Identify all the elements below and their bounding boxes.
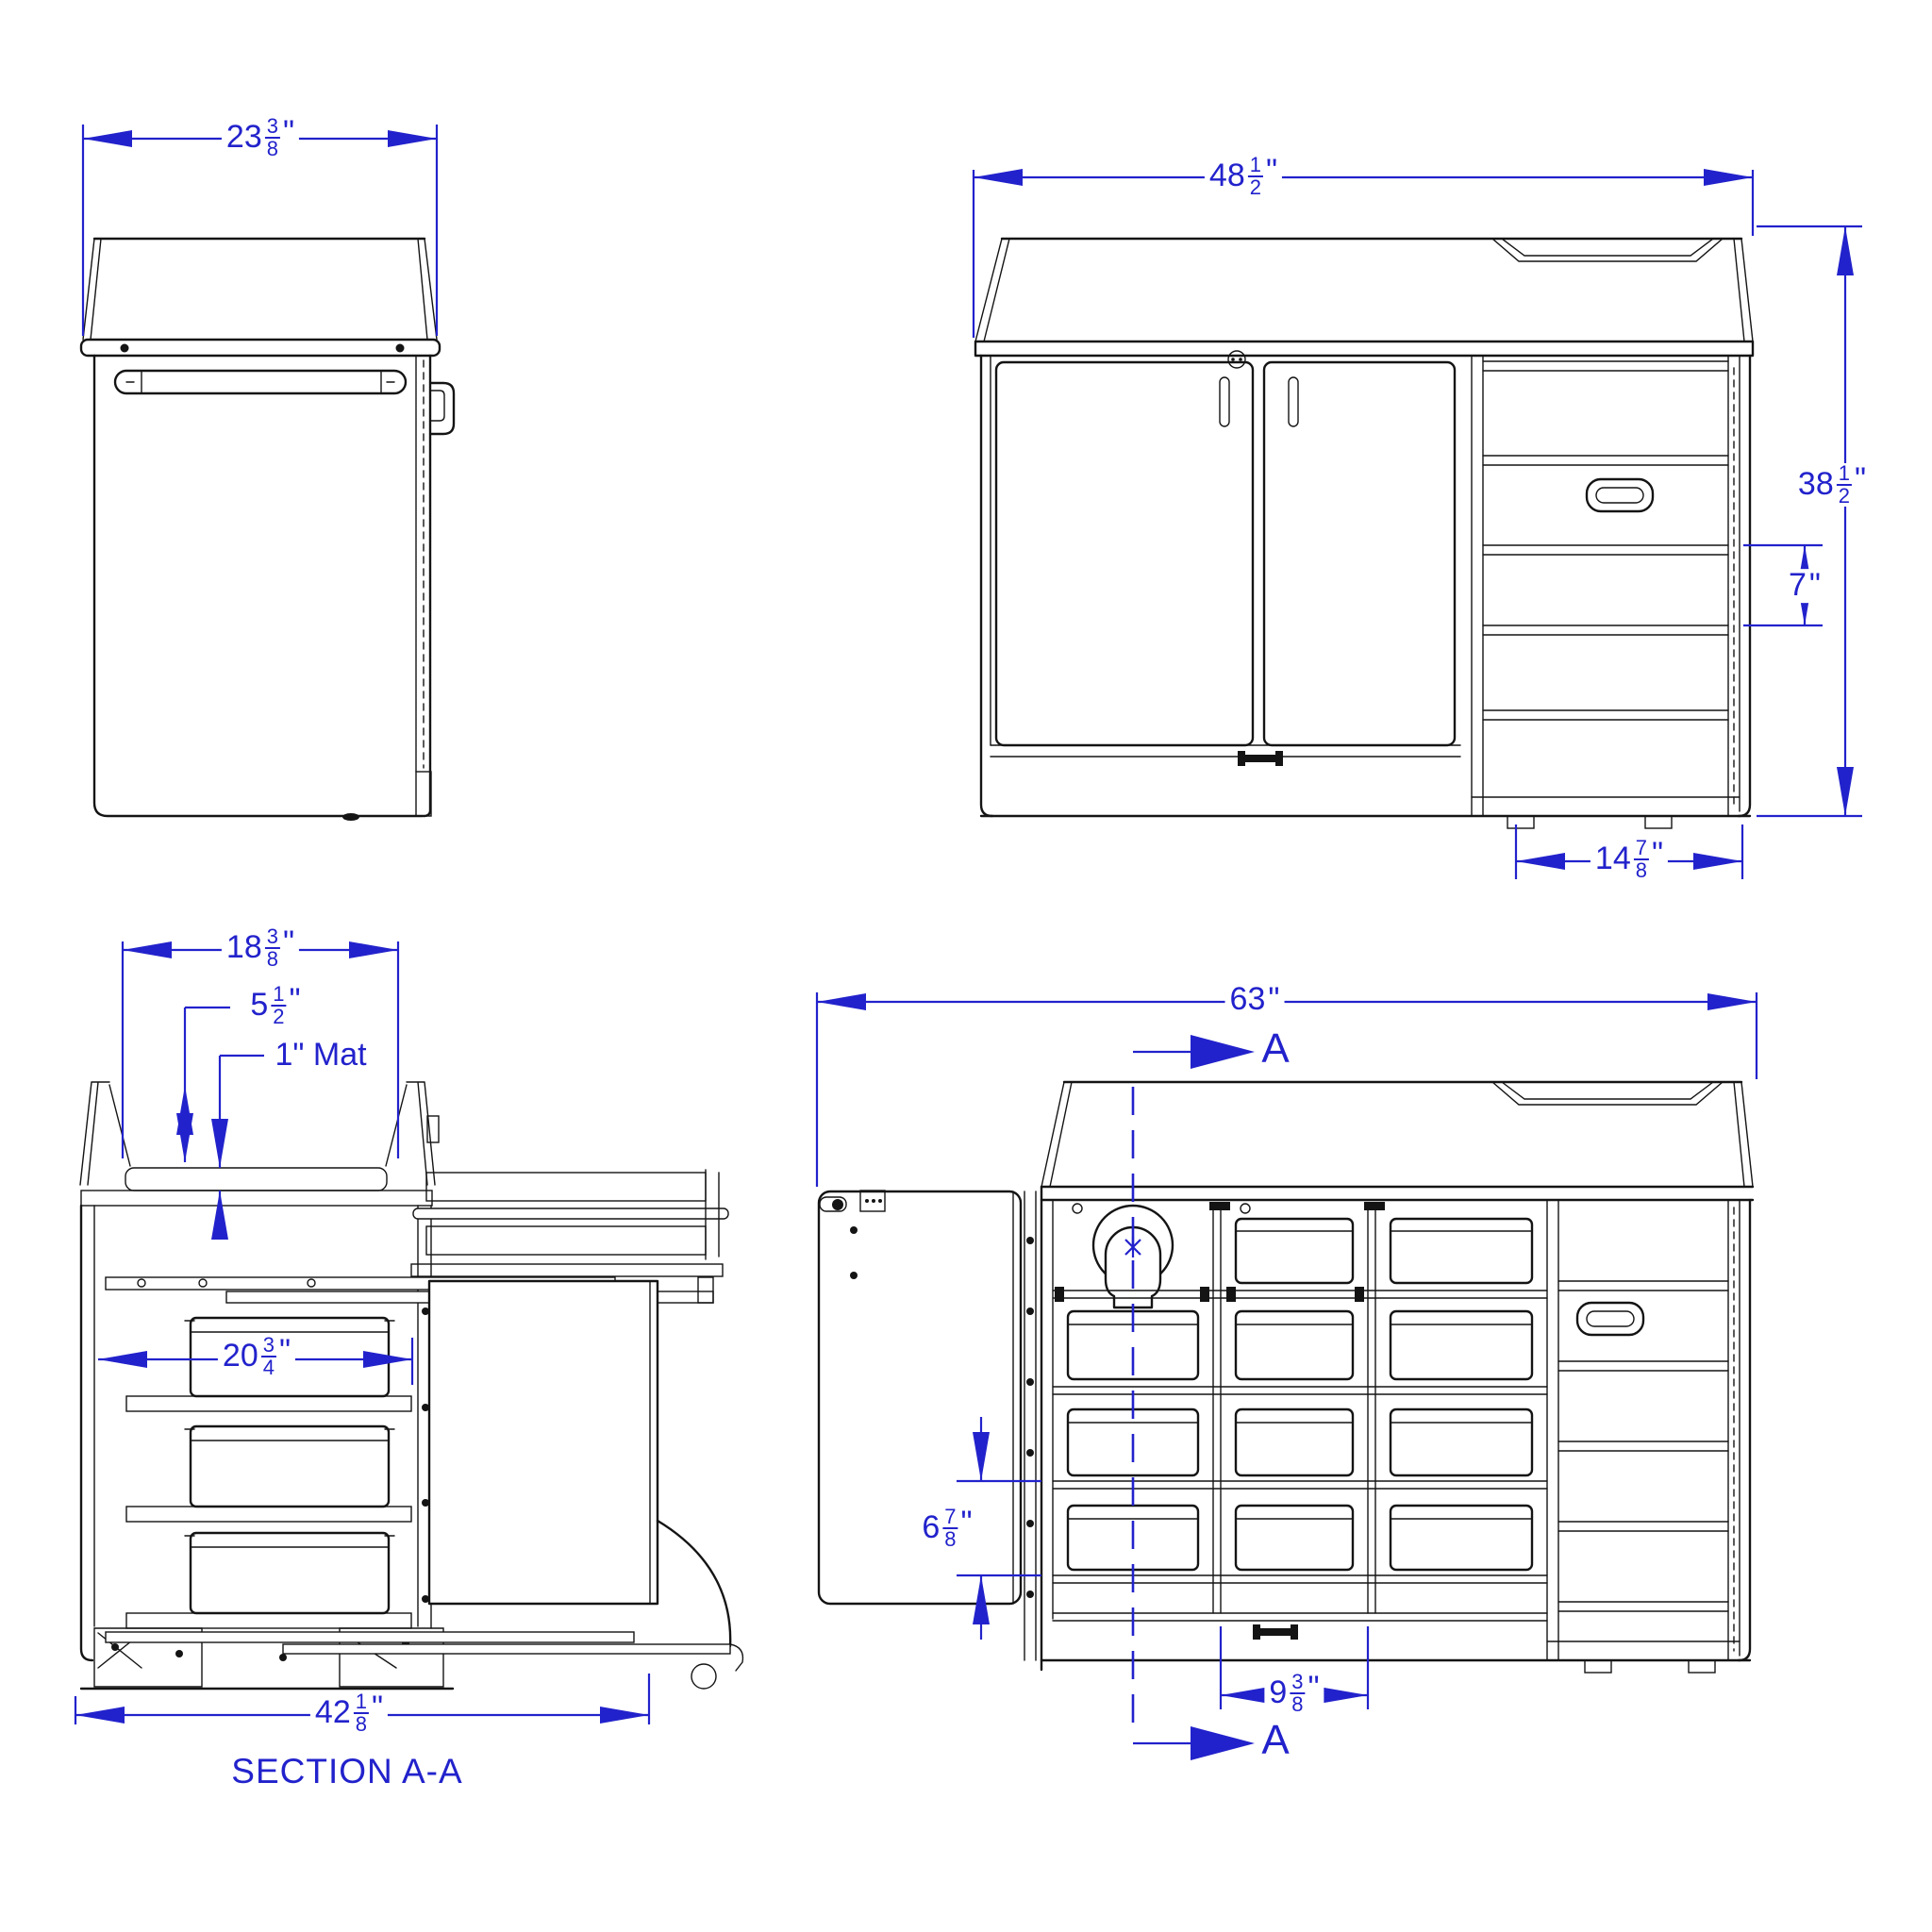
dim-fraction: 12: [1837, 463, 1852, 507]
side-pull-handle: [431, 383, 454, 434]
foot-tab: [1689, 1660, 1715, 1673]
dim-front-height: [1757, 226, 1862, 816]
dim-whole: 7: [1789, 569, 1807, 603]
dim-fraction: 38: [265, 926, 280, 970]
dim-label-mat-note: 1" Mat: [270, 1039, 371, 1073]
dim-label-front-height: 3812": [1793, 463, 1871, 507]
dim-fraction: 38: [265, 116, 280, 159]
dim-whole: 48: [1209, 159, 1245, 193]
section-arrow-label-bottom: A: [1257, 1717, 1292, 1764]
dim-label-bin-spacing: 938": [1264, 1672, 1324, 1715]
dim-whole: 38: [1798, 468, 1834, 502]
dim-fraction: 38: [1290, 1672, 1305, 1715]
dim-label-shelf-spacing: 678": [917, 1507, 976, 1550]
dim-label-tray-width: 1838": [222, 926, 299, 970]
kick-latch-icon: [1253, 1624, 1298, 1640]
dim-unit: ": [283, 926, 294, 958]
dim-label-side-width: 2338": [222, 116, 299, 159]
dim-unit: ": [961, 1507, 973, 1539]
dim-fraction: 78: [1634, 838, 1649, 881]
counter-board-section: [81, 1191, 432, 1206]
foot-glide-icon: [342, 813, 359, 821]
dim-whole: 6: [922, 1511, 940, 1545]
dim-mat-note: [211, 1056, 264, 1240]
step-stool-front: [1472, 356, 1740, 828]
cad-drawing-sheet: 2338" 4812" 3812" 7" 1478" 1838" 512" 1"…: [0, 0, 1932, 1932]
dim-label-bin-width: 2034": [218, 1335, 295, 1378]
side-view: [81, 125, 454, 821]
caster-icon: [691, 1664, 716, 1689]
kick-latch-icon: [1238, 751, 1283, 766]
step-stool-front: [1547, 1200, 1740, 1673]
dim-unit: ": [372, 1691, 383, 1724]
dim-fraction: 12: [271, 984, 286, 1027]
dim-front-width: [974, 169, 1753, 338]
front-view: [974, 169, 1862, 879]
foot-tab: [1585, 1660, 1611, 1673]
dim-fraction: 18: [354, 1691, 369, 1735]
foot-tab: [1645, 816, 1672, 828]
hinge-strip: [1024, 1191, 1036, 1660]
changing-tray-recess: [1492, 239, 1723, 261]
dim-whole: 42: [315, 1696, 351, 1730]
dim-whole: 14: [1595, 842, 1631, 876]
changing-mat: [125, 1168, 387, 1191]
dim-label-step-rise: 7": [1784, 569, 1825, 603]
cabinet-doors: [996, 351, 1455, 745]
shelf-section: [126, 1613, 411, 1628]
dim-whole: 23: [226, 121, 262, 155]
dim-label-section-width: 4218": [310, 1691, 388, 1735]
dim-label-front-width: 4812": [1205, 155, 1282, 198]
section-view: [75, 941, 742, 1724]
dim-whole: 18: [226, 931, 262, 965]
shelf-section: [126, 1507, 411, 1522]
changing-tray-recess: [1492, 1082, 1723, 1105]
section-cut-line: [1133, 1035, 1255, 1760]
dim-unit: ": [1268, 983, 1279, 1015]
screw-icon: [121, 344, 129, 353]
section-arrow-label-top: A: [1257, 1025, 1292, 1073]
dim-overall-width: [817, 992, 1757, 1187]
mat-note-text: 1" Mat: [275, 1039, 366, 1073]
dim-whole: 20: [223, 1340, 258, 1374]
dim-label-overall-width: 63": [1225, 983, 1285, 1017]
dim-unit: ": [279, 1335, 291, 1367]
shelf-section: [126, 1396, 411, 1411]
dim-fraction: 12: [1248, 155, 1263, 198]
dim-unit: ": [290, 984, 301, 1016]
front-open-view: [817, 992, 1757, 1760]
dim-whole: 9: [1269, 1676, 1287, 1710]
dim-unit: ": [1809, 569, 1821, 601]
door-pull-slot: [1220, 377, 1229, 426]
dim-fraction: 78: [942, 1507, 958, 1550]
dim-unit: ": [1266, 155, 1277, 187]
lock-icon: [1228, 351, 1245, 368]
door-pull-slot: [1289, 377, 1298, 426]
section-title: SECTION A-A: [225, 1752, 468, 1791]
dim-fraction: 34: [261, 1335, 276, 1378]
foot-tab: [1507, 816, 1534, 828]
dim-unit: ": [1308, 1672, 1320, 1704]
dim-unit: ": [283, 116, 294, 148]
towel-bar: [115, 371, 406, 393]
dim-whole: 5: [250, 989, 268, 1023]
dim-unit: ": [1652, 838, 1663, 870]
dim-unit: ": [1855, 463, 1866, 495]
dim-label-steps-depth: 1478": [1591, 838, 1668, 881]
screw-icon: [396, 344, 405, 353]
dim-whole: 63: [1230, 983, 1266, 1017]
dim-label-tray-depth: 512": [245, 984, 305, 1027]
